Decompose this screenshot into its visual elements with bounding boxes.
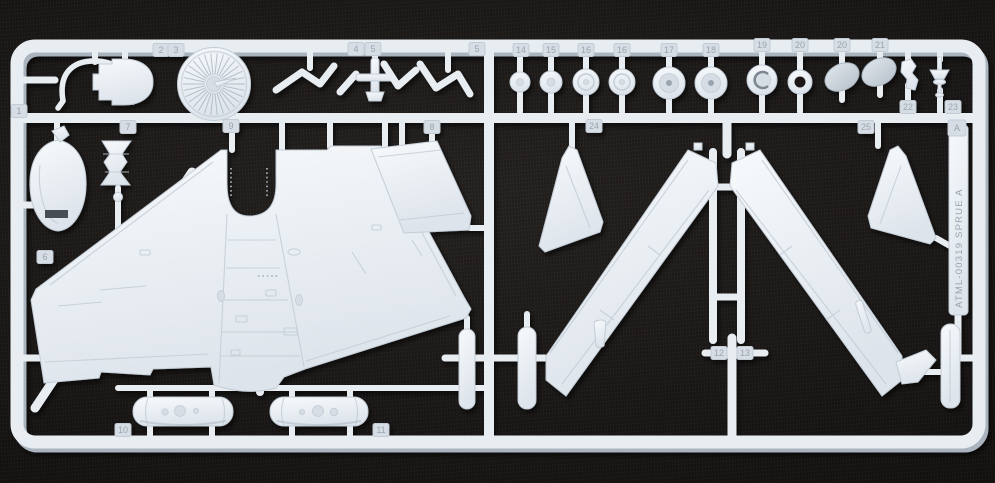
tab-number: 4 [353, 44, 358, 54]
wheel-part [540, 71, 562, 93]
part-number-tab: 22 [900, 101, 916, 114]
wingtip-fairing [896, 350, 936, 384]
wheel-part [510, 72, 530, 92]
rudder-part [868, 146, 936, 244]
small-bracket-part [901, 59, 918, 90]
part-number-tab: 17 [661, 44, 677, 57]
tab-number: 14 [516, 45, 526, 55]
spool-ball-joint [114, 193, 123, 202]
tab-number: 13 [740, 348, 750, 358]
part-number-tab: 12 [711, 347, 727, 360]
tab-number: 24 [589, 121, 599, 131]
engine-fan-part [178, 48, 251, 121]
part-number-tab: 20 [792, 39, 808, 52]
part-number-tab: 5 [469, 43, 485, 56]
part-number-tab: 24 [586, 120, 602, 133]
ring-part [788, 70, 812, 94]
part-number-tab: 21 [872, 39, 888, 52]
part-number-tab: 14 [513, 44, 529, 57]
tab-number: 22 [903, 102, 913, 112]
root-lug [694, 143, 702, 150]
tab-number: 21 [875, 40, 885, 50]
ventral-pod-part [30, 126, 86, 231]
part-number-tab: 20 [834, 39, 850, 52]
tab-number: 20 [795, 40, 805, 50]
part-number-tab: 3 [168, 44, 184, 57]
valve-poppet-part [930, 57, 949, 97]
tab-number: 16 [581, 45, 591, 55]
part-number-tab: 5 [365, 43, 381, 56]
part-number-tab: 23 [945, 101, 961, 114]
drop-tank-half-part [133, 397, 233, 426]
tab-number: 11 [376, 425, 385, 435]
sprue: ATML-00319 SPRUE A 12345567982425A141516… [11, 39, 982, 447]
teardrop-fairing-part [820, 57, 864, 97]
tab-number: 12 [714, 348, 724, 358]
part-number-tab: 9 [223, 120, 239, 133]
gear-strut-part [384, 64, 416, 86]
mainwheel-part [695, 67, 727, 99]
drop-tank-half-part [270, 397, 368, 426]
part-number-tab: 7 [120, 121, 136, 134]
tab-number: 6 [42, 252, 47, 262]
sway-brace [218, 291, 225, 302]
part-number-tab: 2 [153, 44, 169, 57]
part-number-tab: 15 [543, 44, 559, 57]
tab-number: 15 [546, 45, 556, 55]
part-number-tab: 4 [348, 43, 364, 56]
teardrop-fairing-part [857, 52, 901, 92]
sprue-marking-text: ATML-00319 SPRUE A [954, 188, 965, 308]
part-number-tab: 11 [373, 424, 389, 437]
tab-number: 5 [474, 44, 479, 54]
small-blade-part [594, 320, 606, 348]
gear-door-part [459, 329, 475, 409]
root-lug [746, 143, 754, 150]
pylon-rail-part [941, 324, 960, 408]
part-number-tab: 19 [754, 39, 770, 52]
tab-number: 17 [664, 45, 674, 55]
tab-number: 10 [118, 425, 128, 435]
gear-strut-part [340, 74, 356, 92]
gear-strut-part [276, 66, 334, 90]
tab-number: A [954, 123, 960, 133]
part-number-tab: 25 [858, 121, 874, 134]
part-number-tab: 16 [614, 44, 630, 57]
part-number-tab: A [948, 120, 966, 136]
sprue-marking-bar: ATML-00319 SPRUE A [949, 125, 968, 315]
tab-number: 2 [158, 45, 163, 55]
cross-base [366, 92, 384, 101]
wheel-part [609, 69, 635, 95]
part-number-tab: 16 [578, 44, 594, 57]
rudder-part [539, 146, 603, 252]
tab-number: 19 [757, 40, 767, 50]
open-hub-wheel-part [747, 65, 777, 95]
part-number-tab: 8 [424, 121, 440, 134]
sway-brace [296, 295, 303, 306]
tab-number: 23 [948, 102, 958, 112]
photo-stage: ATML-00319 SPRUE A 12345567982425A141516… [0, 0, 995, 483]
pod-slot [45, 210, 68, 218]
part-number-tab: 10 [115, 424, 131, 437]
gear-door-part [518, 327, 536, 409]
tab-number: 5 [370, 44, 375, 54]
wheel-part [573, 69, 599, 95]
tab-number: 20 [837, 40, 847, 50]
tab-number: 16 [617, 45, 627, 55]
part-number-tab: 1 [11, 105, 27, 118]
exhaust-spool-part [101, 141, 131, 202]
sprue-photo: ATML-00319 SPRUE A 12345567982425A141516… [0, 0, 995, 483]
part-number-tab: 13 [737, 347, 753, 360]
tab-number: 1 [16, 106, 21, 116]
tab-number: 3 [173, 45, 178, 55]
bulkhead-shield-part [93, 59, 153, 105]
tab-number: 8 [429, 122, 434, 132]
part-number-tab: 6 [37, 251, 53, 264]
tab-number: 18 [706, 45, 716, 55]
mainwheel-part [653, 67, 685, 99]
tab-number: 7 [125, 122, 130, 132]
tab-number: 25 [861, 122, 871, 132]
part-number-tab: 18 [703, 44, 719, 57]
tab-number: 9 [228, 121, 233, 131]
